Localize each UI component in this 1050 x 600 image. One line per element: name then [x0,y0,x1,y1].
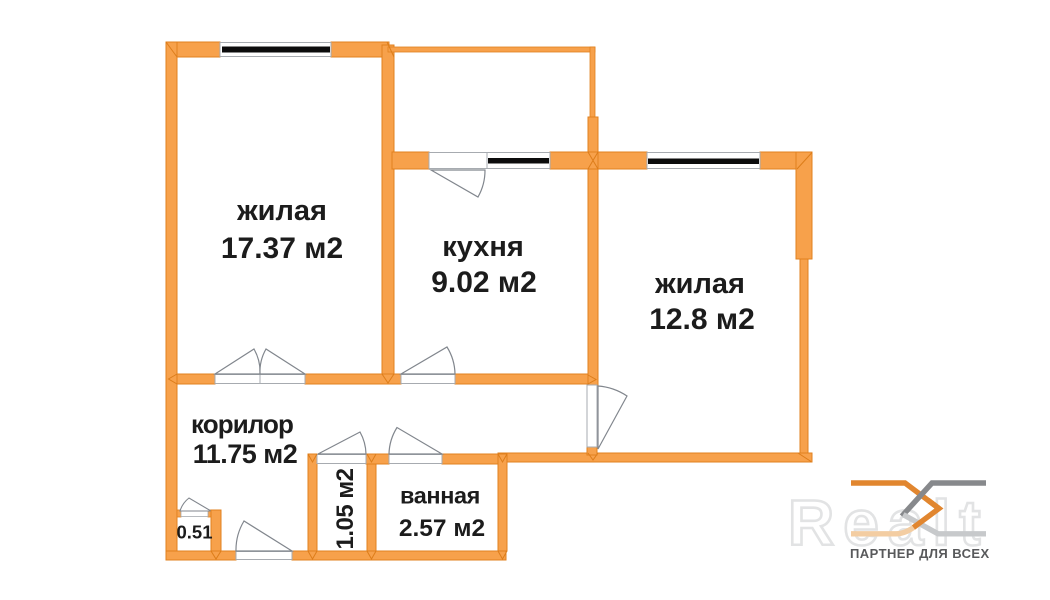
svg-text:9.02 м2: 9.02 м2 [431,266,537,299]
svg-text:2.57 м2: 2.57 м2 [399,515,485,542]
svg-text:ПАРТНЕР ДЛЯ ВСЕХ: ПАРТНЕР ДЛЯ ВСЕХ [850,546,990,561]
svg-text:17.37 м2: 17.37 м2 [221,232,343,265]
svg-text:ванная: ванная [400,483,480,509]
svg-text:жилая: жилая [654,268,745,300]
svg-text:корилор: корилор [191,409,293,439]
svg-text:жилая: жилая [236,195,327,227]
svg-text:12.8 м2: 12.8 м2 [649,303,755,336]
svg-text:0.51: 0.51 [176,522,212,543]
svg-text:1.05 м2: 1.05 м2 [332,468,359,549]
svg-text:кухня: кухня [442,231,524,263]
svg-text:11.75 м2: 11.75 м2 [193,439,298,469]
